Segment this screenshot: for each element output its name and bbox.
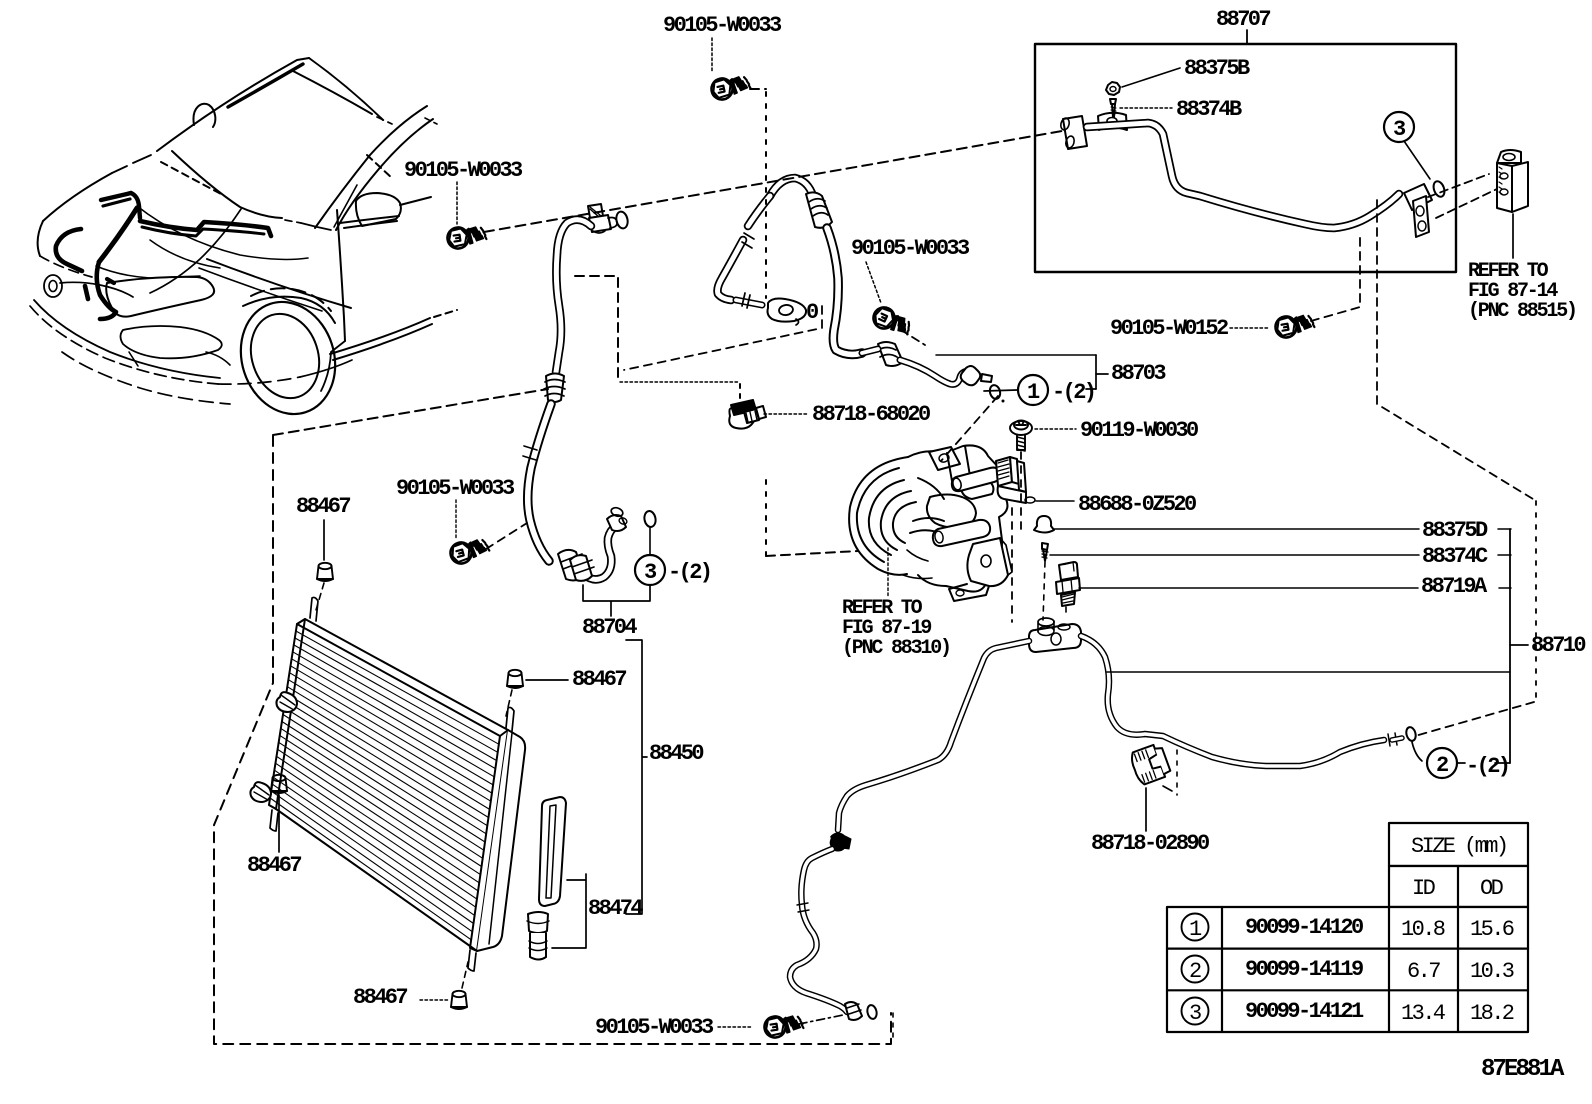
- svg-text:-(2): -(2): [668, 560, 710, 585]
- svg-text:90105-W0033: 90105-W0033: [595, 1015, 714, 1040]
- svg-text:3: 3: [1189, 1001, 1201, 1026]
- svg-text:88474: 88474: [588, 896, 643, 921]
- svg-text:90099-14121: 90099-14121: [1245, 999, 1364, 1024]
- svg-text:2: 2: [1189, 959, 1201, 984]
- svg-text:90099-14120: 90099-14120: [1245, 915, 1363, 940]
- svg-text:10.8: 10.8: [1401, 917, 1445, 942]
- svg-text:88374C: 88374C: [1422, 544, 1488, 569]
- svg-text:88703: 88703: [1111, 361, 1166, 386]
- svg-text:SIZE (mm): SIZE (mm): [1411, 834, 1506, 859]
- svg-text:88718-02890: 88718-02890: [1091, 831, 1209, 856]
- svg-text:88718-68020: 88718-68020: [812, 402, 930, 427]
- svg-text:90099-14119: 90099-14119: [1245, 957, 1363, 982]
- svg-text:(PNC 88310): (PNC 88310): [842, 637, 950, 660]
- svg-text:88710: 88710: [1531, 633, 1585, 658]
- svg-text:88375D: 88375D: [1422, 518, 1488, 543]
- svg-text:10.3: 10.3: [1470, 959, 1514, 984]
- svg-text:18.2: 18.2: [1470, 1001, 1514, 1026]
- svg-text:(PNC 88515): (PNC 88515): [1468, 300, 1576, 323]
- svg-text:OD: OD: [1480, 876, 1504, 901]
- svg-text:88467: 88467: [247, 853, 301, 878]
- svg-text:90105-W0033: 90105-W0033: [404, 158, 523, 183]
- svg-text:0: 0: [806, 300, 818, 325]
- svg-text:90119-W0030: 90119-W0030: [1080, 418, 1198, 443]
- svg-text:88467: 88467: [296, 494, 350, 519]
- svg-text:2: 2: [1436, 753, 1448, 778]
- svg-text:-(2): -(2): [1466, 754, 1508, 779]
- svg-text:6.7: 6.7: [1407, 959, 1440, 984]
- svg-text:-(2): -(2): [1052, 380, 1094, 405]
- svg-text:90105-W0152: 90105-W0152: [1110, 316, 1228, 341]
- svg-text:ID: ID: [1412, 876, 1436, 901]
- svg-text:88467: 88467: [353, 985, 407, 1010]
- svg-text:88719A: 88719A: [1421, 574, 1488, 599]
- svg-text:88375B: 88375B: [1184, 56, 1250, 81]
- svg-text:88374B: 88374B: [1176, 97, 1242, 122]
- svg-text:90105-W0033: 90105-W0033: [663, 13, 782, 38]
- svg-text:88467: 88467: [572, 667, 626, 692]
- svg-text:15.6: 15.6: [1470, 917, 1514, 942]
- svg-text:88688-0Z520: 88688-0Z520: [1078, 492, 1196, 517]
- svg-text:90105-W0033: 90105-W0033: [396, 476, 515, 501]
- svg-text:87E881A: 87E881A: [1481, 1056, 1565, 1083]
- svg-text:13.4: 13.4: [1401, 1001, 1446, 1026]
- svg-text:88707: 88707: [1216, 7, 1270, 32]
- svg-text:88450: 88450: [649, 741, 703, 766]
- svg-text:88704: 88704: [582, 615, 637, 640]
- svg-text:90105-W0033: 90105-W0033: [851, 236, 970, 261]
